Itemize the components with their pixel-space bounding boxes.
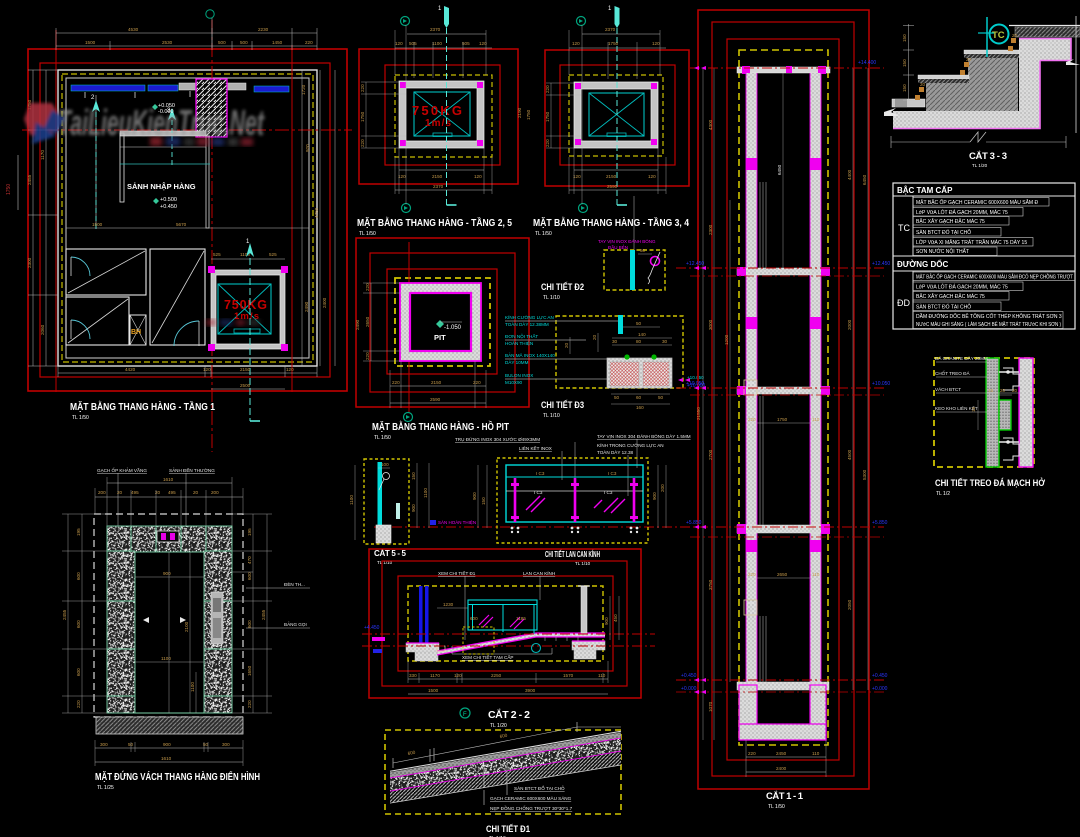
svg-text:TAY VỊN INOX ĐÁNH BÓNG: TAY VỊN INOX ĐÁNH BÓNG: [598, 238, 656, 244]
svg-text:1100: 1100: [349, 495, 354, 505]
svg-text:4400: 4400: [847, 169, 852, 180]
svg-text:120: 120: [648, 174, 656, 179]
svg-text:2590: 2590: [607, 184, 618, 189]
svg-text:ĐẦU BẺN: ĐẦU BẺN: [608, 244, 628, 250]
svg-text:220: 220: [545, 139, 550, 147]
svg-text:3000: 3000: [708, 319, 713, 330]
svg-text:TL 1/10: TL 1/10: [543, 413, 560, 419]
svg-text:SÀN BTCT ĐỔ TẠI CHỖ: SÀN BTCT ĐỔ TẠI CHỖ: [916, 229, 971, 236]
svg-text:500: 500: [240, 40, 248, 45]
svg-text:2455: 2455: [62, 609, 67, 620]
svg-text:120: 120: [395, 41, 403, 46]
svg-text:920: 920: [305, 144, 310, 152]
svg-text:BẬC TAM CẤP: BẬC TAM CẤP: [897, 185, 953, 195]
svg-text:330: 330: [409, 673, 417, 678]
svg-text:60: 60: [636, 395, 642, 400]
svg-text:TC: TC: [992, 30, 1005, 41]
svg-text:ĐD: ĐD: [897, 298, 910, 308]
svg-text:3750: 3750: [708, 579, 713, 590]
svg-text:2490: 2490: [355, 319, 360, 330]
svg-text:XEM CHI TIẾT TAM CẤP: XEM CHI TIẾT TAM CẤP: [462, 654, 513, 660]
svg-text:+0.000: +0.000: [681, 686, 697, 692]
svg-text:50: 50: [636, 321, 642, 326]
svg-text:LỚP VữA XI MĂNG TRÁT TRẦN MÁC: LỚP VữA XI MĂNG TRÁT TRẦN MÁC 75 DÀY 15: [916, 239, 1027, 246]
svg-text:220: 220: [365, 352, 370, 360]
svg-text:LAN CAN KÍNH: LAN CAN KÍNH: [523, 570, 555, 576]
svg-text:150: 150: [411, 472, 416, 480]
svg-text:SƠN NƯỚC NỘI THẤT: SƠN NƯỚC NỘI THẤT: [916, 248, 969, 255]
svg-text:GẠCH CERAMIC 600X600 MÀU SÁNG: GẠCH CERAMIC 600X600 MÀU SÁNG: [490, 795, 572, 801]
svg-text:100: 100: [381, 462, 389, 467]
svg-text:2370: 2370: [605, 27, 616, 32]
svg-text:1750: 1750: [360, 111, 365, 122]
svg-text:TL 1/10: TL 1/10: [575, 561, 591, 566]
svg-text:2370: 2370: [433, 184, 444, 189]
svg-text:2150: 2150: [432, 174, 443, 179]
svg-text:200: 200: [98, 490, 106, 495]
svg-text:1500: 1500: [428, 688, 439, 693]
svg-text:1610: 1610: [163, 477, 174, 482]
svg-text:1170: 1170: [430, 673, 440, 678]
svg-text:MẶT BẰNG THANG HÀNG - TẦNG 3,: MẶT BẰNG THANG HÀNG - TẦNG 3, 4: [533, 216, 689, 229]
svg-text:4530: 4530: [128, 27, 139, 32]
svg-text:195: 195: [76, 528, 81, 536]
svg-text:1100: 1100: [190, 682, 195, 692]
svg-text:20: 20: [592, 334, 597, 340]
svg-text:495: 495: [131, 490, 139, 495]
svg-text:GẠCH ỐP KHẢM VẦNG: GẠCH ỐP KHẢM VẦNG: [97, 467, 147, 473]
svg-text:+14.400: +14.400: [858, 60, 876, 66]
svg-text:220: 220: [545, 85, 550, 93]
svg-text:1170: 1170: [40, 150, 45, 160]
svg-text:30: 30: [662, 339, 668, 344]
svg-text:600: 600: [247, 620, 252, 628]
svg-text:110: 110: [812, 572, 820, 577]
svg-text:+0.500: +0.500: [160, 197, 177, 203]
svg-text:600: 600: [76, 668, 81, 676]
svg-text:+4.450: +4.450: [364, 625, 380, 631]
svg-text:1230: 1230: [443, 602, 454, 607]
svg-text:PIT: PIT: [434, 333, 446, 342]
svg-text:2300: 2300: [27, 257, 32, 268]
svg-text:140: 140: [638, 332, 646, 337]
svg-text:525: 525: [213, 252, 221, 257]
svg-text:15: 15: [988, 388, 994, 393]
svg-text:2455: 2455: [27, 174, 32, 185]
svg-text:120: 120: [286, 367, 294, 372]
svg-text:2400: 2400: [776, 766, 787, 771]
svg-text:+12.450: +12.450: [686, 261, 704, 267]
svg-text:3900: 3900: [525, 688, 536, 693]
svg-text:2400: 2400: [322, 297, 327, 308]
svg-text:M10X90: M10X90: [505, 380, 523, 385]
svg-text:4300: 4300: [708, 119, 713, 130]
svg-text:F: F: [463, 712, 467, 718]
svg-text:2230: 2230: [258, 27, 269, 32]
svg-text:2650: 2650: [365, 316, 370, 327]
svg-text:CẮT 5 - 5: CẮT 5 - 5: [374, 549, 407, 558]
svg-text:+0.450: +0.450: [160, 204, 177, 210]
svg-text:120: 120: [398, 174, 406, 179]
svg-text:2370: 2370: [430, 27, 441, 32]
svg-text:110: 110: [598, 673, 606, 678]
svg-text:6450: 6450: [777, 164, 782, 175]
svg-text:1570: 1570: [563, 673, 574, 678]
svg-text:1500: 1500: [92, 222, 103, 227]
svg-text:I C3: I C3: [534, 490, 543, 495]
svg-text:+10.050: +10.050: [687, 375, 704, 380]
svg-text:LớP VữA LÓT ĐÁ GẠCH 20MM, MÁC: LớP VữA LÓT ĐÁ GẠCH 20MM, MÁC 75: [916, 209, 1008, 216]
svg-text:I C3: I C3: [536, 471, 545, 476]
svg-text:TL 1/2: TL 1/2: [936, 491, 950, 497]
svg-text:20: 20: [564, 342, 569, 348]
svg-text:1750: 1750: [526, 109, 531, 120]
svg-text:750KG: 750KG: [224, 298, 267, 312]
svg-text:220: 220: [76, 700, 81, 708]
svg-text:TL 1/50: TL 1/50: [535, 231, 552, 237]
svg-text:1200: 1200: [724, 334, 729, 345]
svg-text:4500: 4500: [847, 449, 852, 460]
svg-text:20: 20: [1000, 388, 1006, 393]
svg-text:TC: TC: [898, 223, 910, 233]
svg-text:1500: 1500: [85, 40, 96, 45]
svg-text:150: 150: [902, 59, 907, 67]
svg-text:TL 1/10: TL 1/10: [543, 295, 560, 301]
svg-text:600: 600: [470, 616, 478, 621]
svg-text:SẢNH ĐẾN THƯỜNG: SẢNH ĐẾN THƯỜNG: [169, 467, 215, 473]
svg-text:TL 1/50: TL 1/50: [359, 231, 376, 237]
svg-text:1100: 1100: [432, 41, 442, 46]
svg-text:1450: 1450: [272, 40, 283, 45]
svg-text:150: 150: [902, 34, 907, 42]
svg-text:NẸP ĐỒNG CHỐNG TRƯỢT 30*30*1.7: NẸP ĐỒNG CHỐNG TRƯỢT 30*30*1.7: [490, 805, 573, 811]
svg-text:TRỤ ĐỨNG INOX 304 XƯỚC Ø49X3MM: TRỤ ĐỨNG INOX 304 XƯỚC Ø49X3MM: [455, 436, 540, 442]
svg-text:+0.000: +0.000: [872, 686, 888, 692]
svg-text:80: 80: [636, 339, 642, 344]
svg-text:BẬC XÂY GẠCH ĐẶC MÁC 75: BẬC XÂY GẠCH ĐẶC MÁC 75: [916, 293, 985, 300]
svg-text:505: 505: [462, 41, 470, 46]
svg-text:1185: 1185: [516, 616, 526, 621]
svg-text:SẢNH NHẬP HÀNG: SẢNH NHẬP HÀNG: [127, 182, 196, 191]
svg-text:505: 505: [409, 41, 417, 46]
svg-text:BẬC XÂY GẠCH ĐẶC MÁC 75: BẬC XÂY GẠCH ĐẶC MÁC 75: [916, 218, 985, 225]
svg-text:195: 195: [247, 528, 252, 536]
svg-text:HOÀN THIỆN: HOÀN THIỆN: [505, 339, 533, 346]
svg-text:-1.050: -1.050: [444, 325, 462, 331]
svg-text:I C3: I C3: [608, 471, 617, 476]
svg-text:600: 600: [247, 572, 252, 580]
svg-text:ĐƠN NỘI THẤT: ĐƠN NỘI THẤT: [505, 333, 538, 339]
svg-text:2100: 2100: [184, 621, 189, 632]
svg-text:2300: 2300: [708, 224, 713, 235]
svg-text:30: 30: [612, 339, 618, 344]
svg-text:110: 110: [812, 417, 820, 422]
svg-text:4420: 4420: [125, 367, 136, 372]
svg-text:220: 220: [748, 572, 756, 577]
svg-text:TL 1/20: TL 1/20: [972, 163, 988, 168]
svg-text:1m/s: 1m/s: [425, 118, 451, 129]
svg-text:2150: 2150: [431, 380, 442, 385]
svg-text:50: 50: [640, 248, 646, 253]
svg-text:50: 50: [128, 742, 134, 747]
svg-text:50: 50: [658, 395, 664, 400]
svg-text:ĐÁ GRANITE DÀY 20MM: ĐÁ GRANITE DÀY 20MM: [935, 355, 988, 361]
svg-text:300: 300: [222, 742, 230, 747]
svg-text:CẮT 2 - 2: CẮT 2 - 2: [488, 708, 530, 721]
svg-text:600: 600: [76, 620, 81, 628]
svg-text:1100: 1100: [161, 656, 171, 661]
svg-text:50: 50: [614, 395, 620, 400]
svg-text:900: 900: [472, 492, 477, 500]
svg-text:I C3: I C3: [604, 490, 613, 495]
svg-text:20: 20: [920, 82, 926, 87]
svg-text:TOÀN DÀY 12.38: TOÀN DÀY 12.38: [597, 449, 634, 455]
svg-text:4750: 4750: [314, 207, 319, 218]
svg-text:NƯớC MÀU GHI SÁNG ( LÀM SẠCH B: NƯớC MÀU GHI SÁNG ( LÀM SẠCH BỂ MẶT TRÁT…: [916, 321, 1061, 328]
svg-text:CHI TIẾT Đ2: CHI TIẾT Đ2: [541, 282, 584, 292]
svg-text:MẶT BẰNG THANG HÀNG - TẦNG 2,: MẶT BẰNG THANG HÀNG - TẦNG 2, 5: [357, 216, 512, 229]
svg-text:900: 900: [604, 617, 609, 625]
svg-text:TL 1/25: TL 1/25: [97, 785, 114, 791]
svg-text:525: 525: [269, 252, 277, 257]
svg-text:1070: 1070: [708, 701, 713, 712]
svg-text:+5.850: +5.850: [872, 520, 888, 526]
svg-text:220: 220: [360, 139, 365, 147]
svg-text:110: 110: [812, 751, 820, 756]
svg-text:KÍNH CƯỜNG LỰC AN: KÍNH CƯỜNG LỰC AN: [505, 314, 554, 320]
svg-text:+0.450: +0.450: [872, 673, 888, 679]
svg-text:20: 20: [193, 490, 199, 495]
svg-text:ĐÈN TH...: ĐÈN TH...: [284, 581, 305, 587]
svg-text:2500: 2500: [240, 383, 251, 388]
svg-text:15: 15: [971, 406, 976, 412]
svg-text:BẢN MÃ INOX 140X140: BẢN MÃ INOX 140X140: [505, 352, 555, 358]
svg-text:TOÀN DÀY 12.38MM: TOÀN DÀY 12.38MM: [505, 321, 549, 327]
svg-text:20: 20: [1012, 33, 1018, 38]
svg-text:900: 900: [163, 742, 171, 747]
svg-text:CẮT 3 - 3: CẮT 3 - 3: [969, 151, 1007, 162]
svg-text:ĐƯỜNG DỐC: ĐƯỜNG DỐC: [897, 259, 948, 269]
svg-text:500: 500: [218, 40, 226, 45]
svg-text:2450: 2450: [776, 751, 787, 756]
svg-text:KÍNH TRONG CƯỜNG LỰC AN: KÍNH TRONG CƯỜNG LỰC AN: [597, 442, 664, 448]
svg-text:+5.850: +5.850: [686, 520, 702, 526]
svg-text:2700: 2700: [708, 449, 713, 460]
svg-text:5670: 5670: [176, 222, 187, 227]
svg-text:TaiLieuKienTruc.Net: TaiLieuKienTruc.Net: [58, 102, 265, 143]
svg-text:2530: 2530: [162, 40, 173, 45]
svg-text:220: 220: [365, 283, 370, 291]
svg-text:150: 150: [902, 84, 907, 92]
svg-text:20: 20: [1012, 388, 1018, 393]
svg-text:+0.450: +0.450: [681, 673, 697, 679]
svg-text:220: 220: [392, 380, 400, 385]
svg-text:CHI TIẾT TREO ĐÁ MẠCH HỞ: CHI TIẾT TREO ĐÁ MẠCH HỞ: [935, 477, 1045, 488]
svg-text:CHI TIẾT Đ1: CHI TIẾT Đ1: [486, 824, 530, 834]
svg-text:1610: 1610: [161, 756, 172, 761]
svg-text:200: 200: [211, 490, 219, 495]
svg-text:900: 900: [411, 504, 416, 512]
svg-text:TL 1/20: TL 1/20: [490, 723, 507, 729]
svg-text:120: 120: [454, 673, 462, 678]
svg-text:20: 20: [117, 490, 123, 495]
svg-text:SÀN BTCT ĐỔ TẠI CHỖ: SÀN BTCT ĐỔ TẠI CHỖ: [916, 304, 971, 311]
svg-text:MẶT BẰNG THANG HÀNG - TẦNG 1: MẶT BẰNG THANG HÀNG - TẦNG 1: [70, 400, 215, 413]
svg-text:2190: 2190: [517, 107, 522, 118]
svg-text:900: 900: [163, 571, 171, 576]
svg-text:300: 300: [100, 742, 108, 747]
svg-text:SÀN BTCT ĐỔ TẠI CHỖ: SÀN BTCT ĐỔ TẠI CHỖ: [514, 785, 565, 791]
svg-text:1750: 1750: [777, 417, 788, 422]
svg-text:220: 220: [247, 700, 252, 708]
svg-text:6450: 6450: [862, 174, 867, 185]
svg-text:+10.050: +10.050: [686, 381, 704, 387]
svg-text:DÀY 10MM: DÀY 10MM: [505, 359, 529, 365]
svg-text:120: 120: [474, 174, 482, 179]
svg-text:470: 470: [247, 556, 252, 564]
svg-text:1750: 1750: [6, 184, 12, 195]
svg-text:2250: 2250: [491, 673, 502, 678]
svg-text:5300: 5300: [862, 469, 867, 480]
svg-text:495: 495: [168, 490, 176, 495]
svg-text:2150: 2150: [606, 174, 617, 179]
svg-text:220: 220: [305, 40, 313, 45]
svg-text:900: 900: [652, 492, 657, 500]
svg-text:2050: 2050: [847, 599, 852, 610]
svg-text:TL 1/50: TL 1/50: [768, 804, 785, 810]
svg-text:21550: 21550: [696, 407, 701, 420]
svg-text:1750: 1750: [608, 41, 619, 46]
svg-text:MẶT ĐỨNG VÁCH THANG HÀNG ĐIỂN: MẶT ĐỨNG VÁCH THANG HÀNG ĐIỂN HÌNH: [95, 770, 260, 783]
svg-text:CHI TIẾT LAN CAN KÍNH: CHI TIẾT LAN CAN KÍNH: [545, 549, 600, 559]
svg-text:220: 220: [748, 417, 756, 422]
svg-text:MẶT BẬC ỐP GẠCH CERAMIC 600X60: MẶT BẬC ỐP GẠCH CERAMIC 600X600 MÀU SẪM …: [916, 274, 1073, 281]
svg-text:220: 220: [473, 380, 481, 385]
svg-text:120: 120: [572, 41, 580, 46]
svg-text:TL 1/50: TL 1/50: [72, 415, 89, 421]
svg-text:150: 150: [481, 497, 486, 505]
svg-text:CHỐT TREO ĐÁ: CHỐT TREO ĐÁ: [935, 370, 970, 376]
svg-text:2060: 2060: [40, 324, 45, 335]
svg-text:160: 160: [636, 405, 644, 410]
svg-text:LIÊN KẾT INOX: LIÊN KẾT INOX: [519, 444, 552, 451]
svg-text:220: 220: [360, 84, 365, 92]
svg-text:LớP VữA LÓT ĐÁ GẠCH 20MM, MÁC: LớP VữA LÓT ĐÁ GẠCH 20MM, MÁC 75: [916, 284, 1008, 291]
svg-text:MẶT BẰNG THANG HÀNG - HỒ PIT: MẶT BẰNG THANG HÀNG - HỒ PIT: [372, 420, 509, 433]
svg-text:20: 20: [966, 57, 972, 62]
svg-text:DẦM ĐƯỜNG DỐC BÊ TÔNG CỐT THÉP: DẦM ĐƯỜNG DỐC BÊ TÔNG CỐT THÉP KHÔNG TRÁ…: [916, 312, 1062, 320]
svg-text:450: 450: [613, 614, 618, 622]
svg-text:120: 120: [203, 367, 211, 372]
svg-text:CẮT 1 - 1: CẮT 1 - 1: [766, 791, 804, 802]
svg-text:220: 220: [748, 751, 756, 756]
svg-text:2455: 2455: [261, 609, 266, 620]
svg-text:200: 200: [660, 484, 665, 492]
svg-text:2000: 2000: [847, 319, 852, 330]
svg-text:+10.050: +10.050: [872, 381, 890, 387]
svg-text:BH: BH: [131, 329, 141, 336]
svg-text:600: 600: [76, 572, 81, 580]
svg-text:1720: 1720: [301, 84, 306, 95]
svg-text:BẢNG GỌI: BẢNG GỌI: [284, 621, 307, 627]
svg-text:XEM CHI TIẾT Đ1: XEM CHI TIẾT Đ1: [438, 570, 476, 576]
svg-text:1100: 1100: [423, 488, 428, 498]
svg-text:BULON INOX: BULON INOX: [505, 373, 533, 378]
svg-text:2490: 2490: [304, 301, 309, 312]
svg-text:+12.450: +12.450: [872, 261, 890, 267]
svg-text:120: 120: [573, 174, 581, 179]
svg-text:MẶT BẬC ỐP GẠCH CERAMIC 600X60: MẶT BẬC ỐP GẠCH CERAMIC 600X600 MÀU SẪM …: [916, 199, 1038, 206]
svg-text:1650: 1650: [247, 665, 252, 676]
svg-text:2590: 2590: [430, 397, 441, 402]
svg-text:VÁCH BTCT: VÁCH BTCT: [935, 386, 961, 392]
svg-text:TL 1/50: TL 1/50: [374, 435, 391, 441]
svg-text:1750: 1750: [545, 111, 550, 122]
svg-text:120: 120: [652, 41, 660, 46]
svg-text:TAY VỊN INOX 304 ĐÁNH BÓNG DÀY: TAY VỊN INOX 304 ĐÁNH BÓNG DÀY 1.5MM: [597, 433, 691, 439]
svg-text:SÀN HOÀN THIỆN: SÀN HOÀN THIỆN: [438, 518, 476, 525]
svg-text:2650: 2650: [777, 572, 788, 577]
svg-text:2150: 2150: [240, 367, 251, 372]
svg-text:CHI TIẾT Đ3: CHI TIẾT Đ3: [541, 400, 584, 410]
